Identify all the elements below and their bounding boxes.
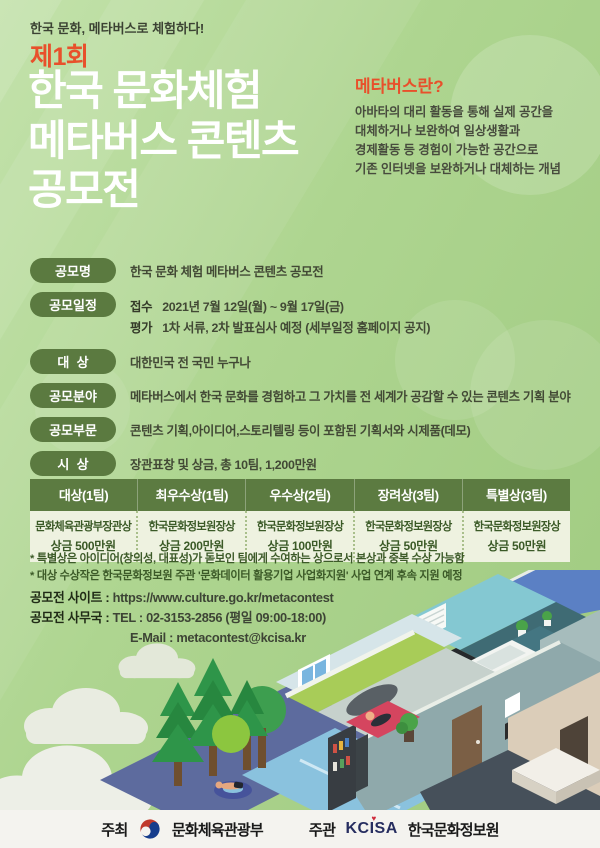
prize-name: 한국문화정보원장상: [464, 518, 570, 534]
prize-header-cell: 대상(1팀): [30, 479, 137, 511]
title-line-3: 공모전: [28, 165, 298, 215]
title-line-2: 메타버스 콘텐츠: [28, 116, 298, 166]
office-email-row: E-Mail : metacontest@kcisa.kr: [130, 628, 334, 648]
site-url: https://www.culture.go.kr/metacontest: [113, 590, 334, 605]
metaverse-definition: 메타버스란? 아바타의 대리 활동을 통해 실제 공간을 대체하거나 보완하여 …: [355, 72, 595, 179]
info-value: 콘텐츠 기획,아이디어,스토리텔링 등이 포함된 기획서와 시제품(데모): [130, 417, 470, 441]
info-value: 대한민국 전 국민 누구나: [130, 349, 250, 373]
prize-name: 한국문화정보원장상: [247, 518, 353, 534]
definition-line: 기존 인터넷을 보완하거나 대체하는 개념: [355, 160, 595, 179]
definition-line: 대체하거나 보완하여 일상생활과: [355, 122, 595, 141]
office-email: E-Mail : metacontest@kcisa.kr: [130, 630, 306, 645]
schedule-value: 1차 서류, 2차 발표심사 예정 (세부일정 홈페이지 공지): [162, 321, 430, 335]
heart-icon: ♥: [371, 814, 376, 823]
info-row-name: 공모명 한국 문화 체험 메타버스 콘텐츠 공모전: [30, 258, 590, 283]
prize-header-cell: 특별상(3팀): [462, 479, 570, 511]
info-pill: 공모명: [30, 258, 116, 283]
info-value: 장관표창 및 상금, 총 10팀, 1,200만원: [130, 451, 317, 475]
footnotes: * 특별상은 아이디어(창의성, 대표성)가 돋보인 팀에게 수여하는 상으로서…: [30, 551, 464, 586]
prize-cell: 한국문화정보원장상 상금 50만원: [462, 511, 570, 562]
office-label: 공모전 사무국 :: [30, 610, 109, 625]
prize-name: 문화체육관광부장관상: [30, 518, 136, 534]
prize-header-cell: 장려상(3팀): [354, 479, 462, 511]
pool-person: [214, 781, 252, 799]
prize-name: 한국문화정보원장상: [138, 518, 244, 534]
info-value: 메타버스에서 한국 문화를 경험하고 그 가치를 전 세계가 공감할 수 있는 …: [130, 383, 570, 407]
host-label: 주최: [101, 819, 128, 840]
info-row-eligibility: 대 상 대한민국 전 국민 누구나: [30, 349, 590, 374]
prize-table-header: 대상(1팀) 최우수상(1팀) 우수상(2팀) 장려상(3팀) 특별상(3팀): [30, 479, 570, 511]
definition-line: 경제활동 등 경험이 가능한 공간으로: [355, 141, 595, 160]
office-tel: TEL : 02-3153-2856 (평일 09:00-18:00): [113, 610, 326, 625]
mcst-taegeuk-icon: [138, 817, 162, 841]
footnote: * 대상 수상작은 한국문화정보원 주관 '문화데이터 활용기업 사업화지원' …: [30, 568, 464, 585]
info-pill: 공모부문: [30, 417, 116, 442]
info-pill: 대 상: [30, 349, 116, 374]
info-pill: 공모일정: [30, 292, 116, 317]
prize-table: 대상(1팀) 최우수상(1팀) 우수상(2팀) 장려상(3팀) 특별상(3팀) …: [30, 479, 570, 562]
kcisa-logo: ♥KCISA: [345, 820, 397, 838]
organizer-label: 주관: [309, 819, 336, 840]
definition-heading: 메타버스란?: [355, 72, 595, 97]
tagline: 한국 문화, 메타버스로 체험하다!: [30, 18, 204, 37]
info-pill: 시 상: [30, 451, 116, 476]
definition-line: 아바타의 대리 활동을 통해 실제 공간을: [355, 103, 595, 122]
schedule-line: 평가1차 서류, 2차 발표심사 예정 (세부일정 홈페이지 공지): [130, 318, 430, 339]
organizer-name: 한국문화정보원: [408, 819, 499, 840]
organizer-bar: 주최 문화체육관광부 주관 ♥KCISA 한국문화정보원: [0, 810, 600, 848]
info-row-schedule: 공모일정 접수2021년 7월 12일(월) ~ 9월 17일(금) 평가1차 …: [30, 292, 590, 340]
host-name: 문화체육관광부: [172, 819, 263, 840]
info-pill: 공모분야: [30, 383, 116, 408]
info-row-field: 공모분야 메타버스에서 한국 문화를 경험하고 그 가치를 전 세계가 공감할 …: [30, 383, 590, 408]
poster-title: 한국 문화체험 메타버스 콘텐츠 공모전: [28, 66, 298, 215]
prize-name: 한국문화정보원장상: [355, 518, 461, 534]
footnote: * 특별상은 아이디어(창의성, 대표성)가 돋보인 팀에게 수여하는 상으로서…: [30, 551, 464, 568]
info-value: 한국 문화 체험 메타버스 콘텐츠 공모전: [130, 258, 323, 282]
contest-poster: 한국 문화, 메타버스로 체험하다! 제1회 한국 문화체험 메타버스 콘텐츠 …: [0, 0, 600, 848]
prize-header-cell: 우수상(2팀): [245, 479, 353, 511]
title-line-1: 한국 문화체험: [28, 66, 298, 116]
schedule-key: 평가: [130, 321, 152, 335]
schedule-key: 접수: [130, 300, 152, 314]
site-label: 공모전 사이트 :: [30, 590, 109, 605]
prize-money: 상금 50만원: [464, 537, 570, 554]
contact-info: 공모전 사이트 : https://www.culture.go.kr/meta…: [30, 588, 334, 647]
contest-info-list: 공모명 한국 문화 체험 메타버스 콘텐츠 공모전 공모일정 접수2021년 7…: [30, 258, 590, 485]
schedule-line: 접수2021년 7월 12일(월) ~ 9월 17일(금): [130, 297, 430, 318]
info-row-category: 공모부문 콘텐츠 기획,아이디어,스토리텔링 등이 포함된 기획서와 시제품(데…: [30, 417, 590, 442]
contest-site-row: 공모전 사이트 : https://www.culture.go.kr/meta…: [30, 588, 334, 608]
schedule-value: 2021년 7월 12일(월) ~ 9월 17일(금): [162, 300, 344, 314]
info-row-awards: 시 상 장관표창 및 상금, 총 10팀, 1,200만원: [30, 451, 590, 476]
prize-header-cell: 최우수상(1팀): [137, 479, 245, 511]
schedule-lines: 접수2021년 7월 12일(월) ~ 9월 17일(금) 평가1차 서류, 2…: [130, 292, 430, 340]
contest-office-row: 공모전 사무국 : TEL : 02-3153-2856 (평일 09:00-1…: [30, 608, 334, 628]
